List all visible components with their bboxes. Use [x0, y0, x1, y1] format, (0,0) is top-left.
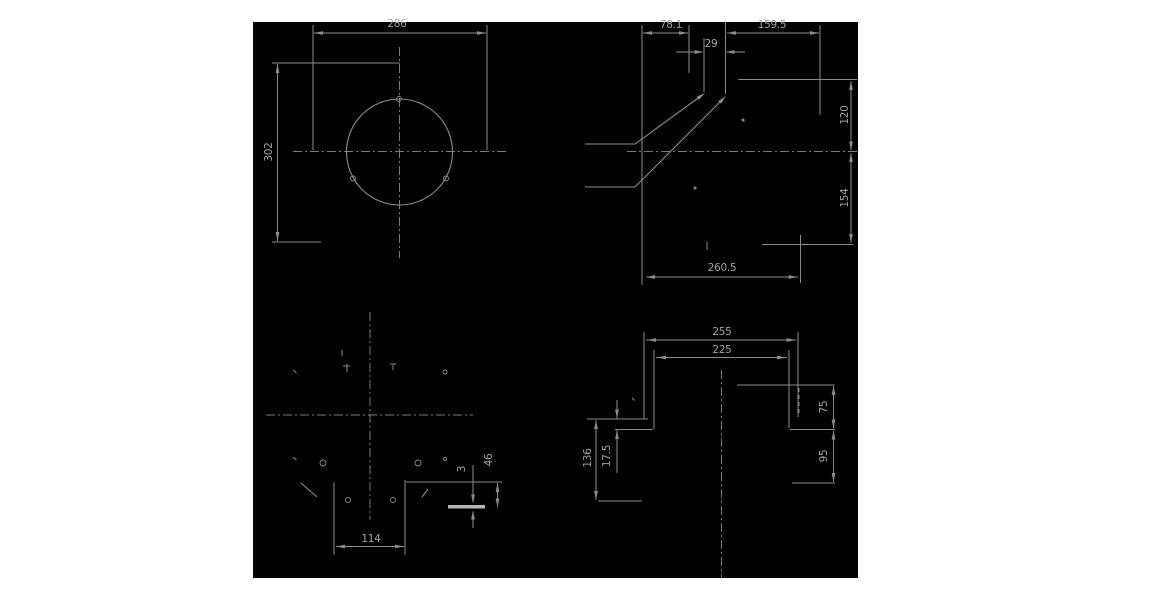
- dimension-label: 120: [839, 105, 851, 124]
- dimension-label: 75: [818, 401, 830, 414]
- dimension-label: 225: [712, 344, 731, 356]
- dimension-label: 29: [705, 38, 718, 50]
- dimension-label: 3: [456, 466, 468, 472]
- dimension-label: 159.5: [758, 19, 787, 31]
- plate-section-line: [448, 505, 485, 509]
- dimension-label: 95: [818, 450, 830, 463]
- dimension-label: 302: [263, 142, 275, 161]
- page-background: 28630278.129159.5120154260.525522513617.…: [0, 0, 1160, 600]
- dimension-label: 154: [839, 188, 851, 208]
- dimension-label: 260.5: [708, 262, 737, 274]
- dimension-label: 46: [483, 453, 495, 466]
- dimension-label: 286: [387, 18, 407, 30]
- dimension-label: 114: [361, 533, 381, 545]
- dimension-label: 255: [712, 326, 731, 338]
- dimension-label: 78.1: [660, 19, 682, 31]
- dimension-label: 17.5: [601, 445, 613, 467]
- dimension-label: 136: [582, 448, 594, 468]
- engineering-drawing-canvas: 28630278.129159.5120154260.525522513617.…: [0, 0, 1160, 600]
- drawing-background: [253, 22, 858, 578]
